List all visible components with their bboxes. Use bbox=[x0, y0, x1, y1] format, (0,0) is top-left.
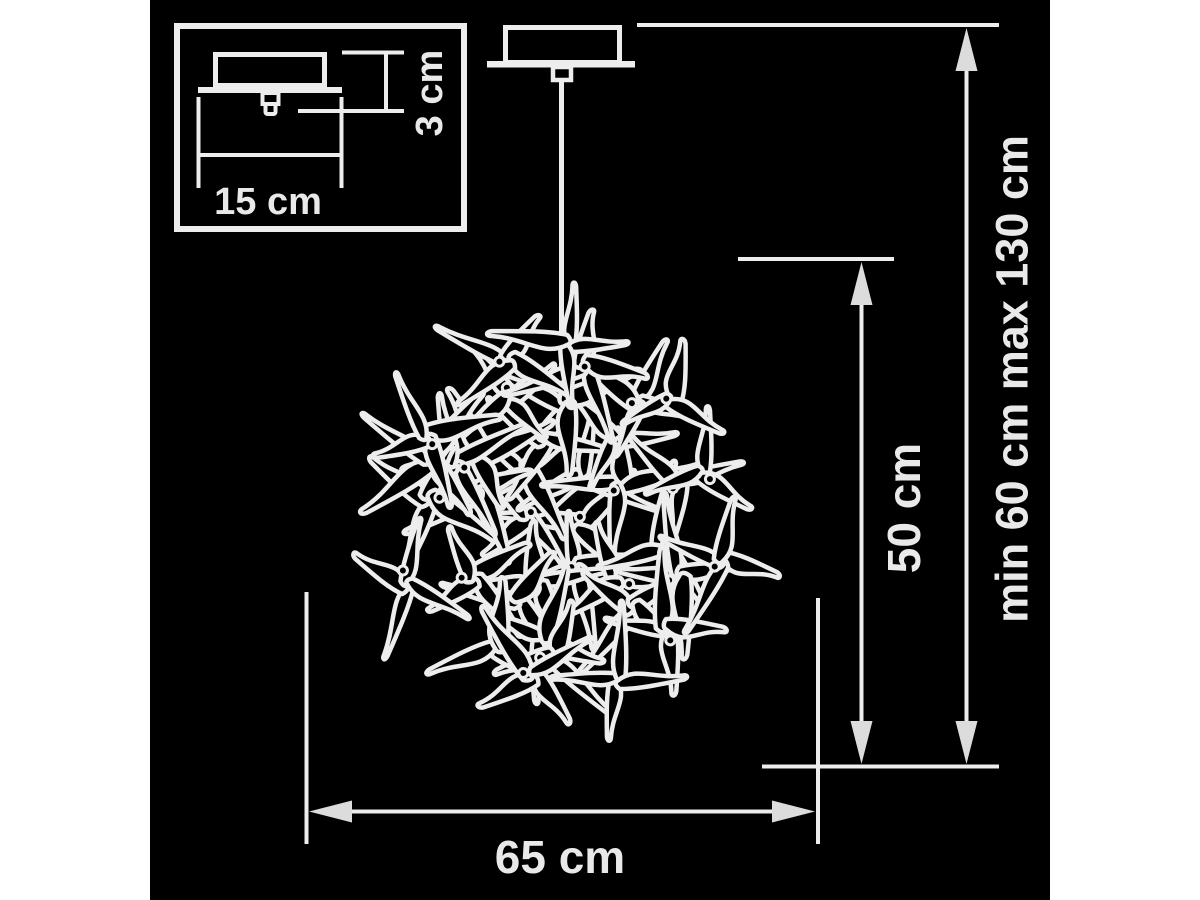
label-ball-height: 50 cm bbox=[881, 443, 927, 573]
inset-canopy bbox=[216, 55, 325, 86]
arrow-down-icon bbox=[851, 721, 873, 764]
label-inset-height: 3 cm bbox=[411, 50, 449, 137]
diagram-canvas: 15 cm 3 cm 65 cm 50 cm min 60 cm max 130… bbox=[0, 0, 1200, 900]
arrow-down-icon bbox=[956, 721, 978, 764]
chandelier-ball bbox=[312, 270, 791, 760]
arrow-right-icon bbox=[772, 801, 815, 823]
label-ball-width: 65 cm bbox=[495, 834, 625, 880]
arrow-up-icon bbox=[851, 262, 873, 305]
arrow-left-icon bbox=[309, 801, 352, 823]
label-inset-width: 15 cm bbox=[214, 183, 322, 221]
dimension-line-ball-height bbox=[851, 262, 873, 764]
dimension-line-hanging-height bbox=[956, 28, 978, 764]
canopy-connector bbox=[553, 67, 571, 80]
inset-screw-tip bbox=[266, 104, 276, 114]
label-hanging-height: min 60 cm max 130 cm bbox=[990, 135, 1035, 623]
dimension-line-ball-width bbox=[309, 801, 815, 823]
arrow-up-icon bbox=[956, 28, 978, 71]
ceiling-canopy bbox=[506, 28, 620, 63]
